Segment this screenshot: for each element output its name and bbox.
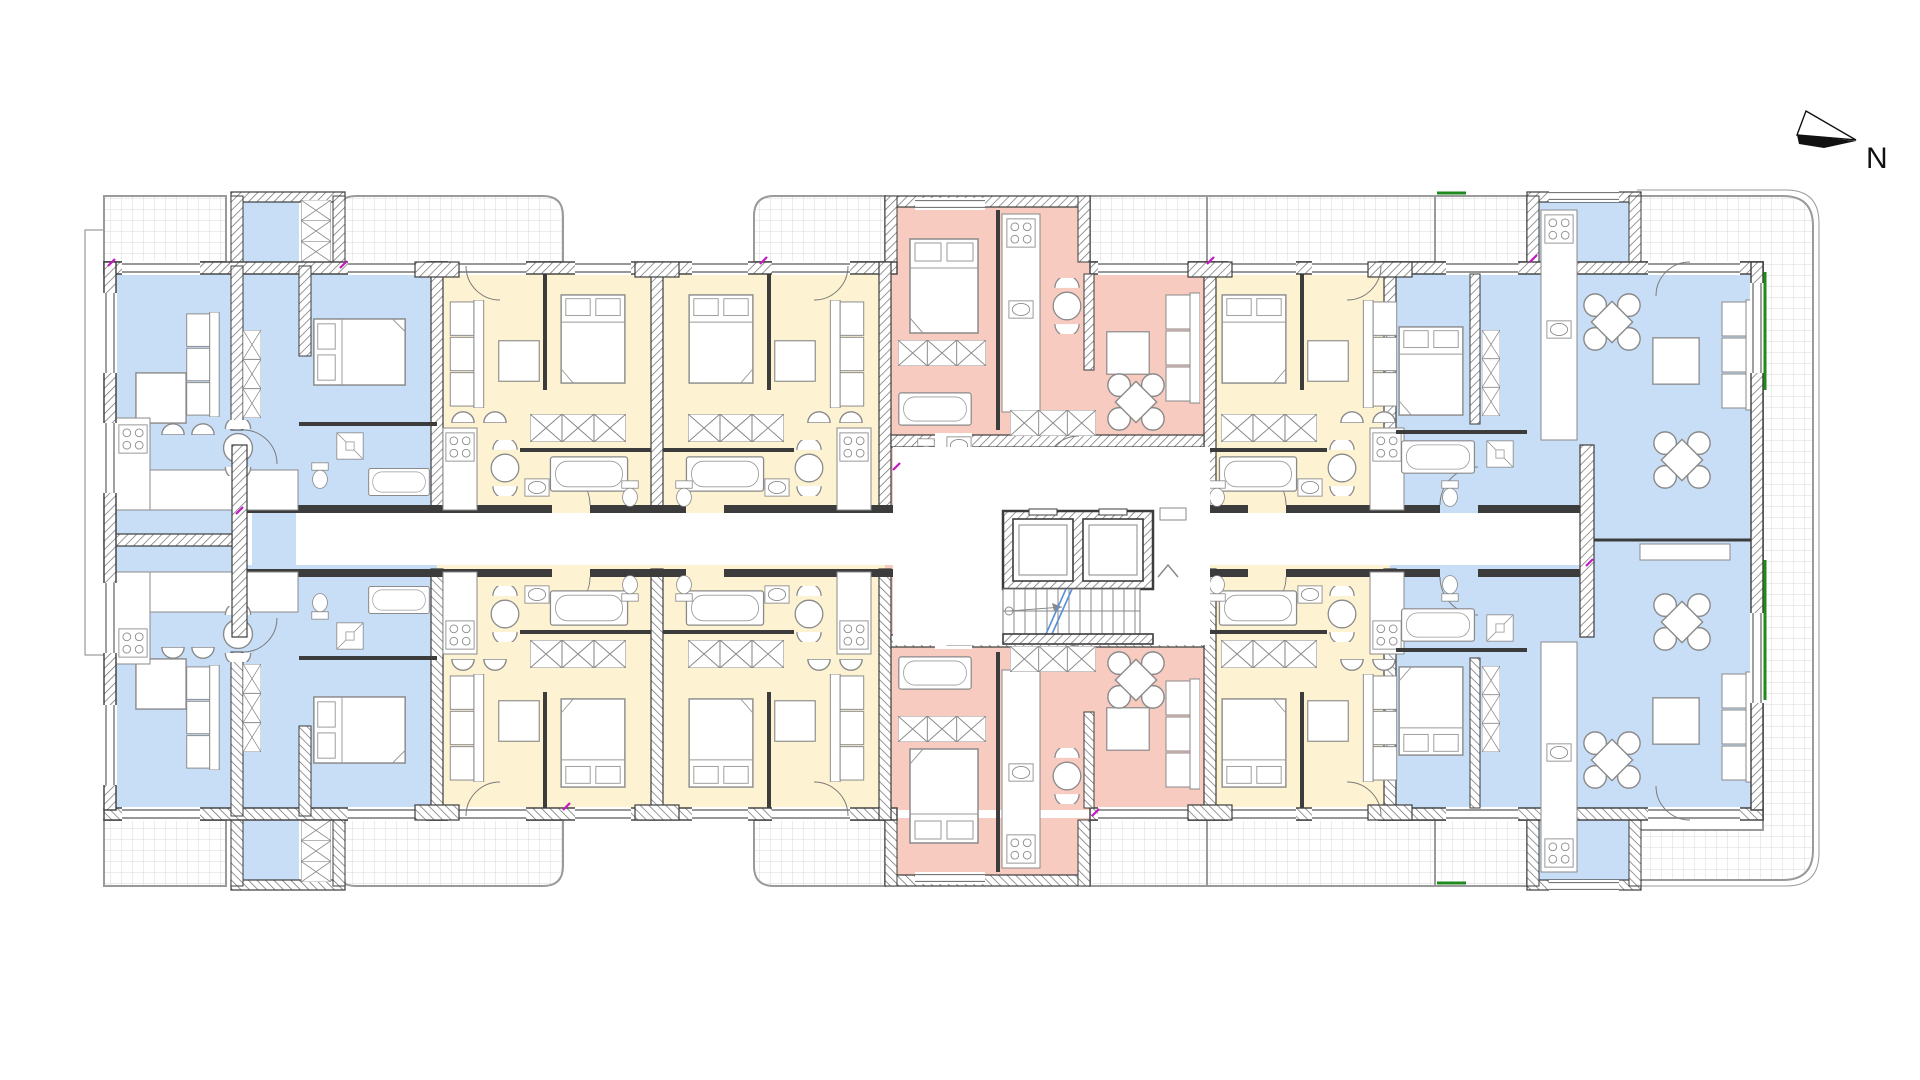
staircase: [1003, 589, 1140, 634]
desk: [1640, 544, 1730, 560]
balcony-left-upper: [336, 196, 563, 262]
coffee-table-icon: [1653, 338, 1699, 384]
sofa-icon: [1166, 293, 1200, 403]
balcony-west-upper: [104, 196, 226, 262]
floor-plan-canvas: N: [0, 0, 1920, 1080]
stove-icon: [1007, 219, 1035, 247]
toilet-icon: [312, 463, 328, 489]
stove-icon: [119, 425, 147, 453]
core-south-wall: [1003, 634, 1153, 644]
west-facade-balcony-strip: [85, 230, 104, 655]
sink-icon: [1009, 301, 1033, 318]
shower-icon: [1487, 441, 1513, 467]
dining-table-icon: [491, 438, 519, 498]
bed-icon: [1399, 327, 1463, 415]
balcony-mid-upper: [754, 196, 885, 262]
bed-icon: [910, 239, 978, 333]
coffee-table-icon: [499, 341, 540, 382]
dining-group-icon: [1584, 294, 1640, 350]
wardrobe-icon: [1010, 410, 1096, 436]
wardrobe-icon: [530, 414, 626, 442]
west-apartment-entry-strip: [243, 196, 299, 266]
wardrobe-icon: [301, 200, 331, 262]
west-apartment-hall-link: [252, 513, 296, 565]
north-label: N: [1866, 142, 1888, 175]
stove-icon: [1545, 215, 1573, 243]
coffee-table-icon: [136, 373, 186, 423]
kitchen-counter: [150, 470, 298, 510]
bed-icon: [561, 295, 625, 383]
elevator-door-1: [1029, 509, 1057, 515]
window-icon: [915, 198, 985, 210]
sink-icon: [525, 479, 549, 496]
shower-icon: [337, 433, 363, 459]
toilet-icon: [622, 481, 638, 507]
west-party-wall: [104, 534, 232, 546]
sofa-icon: [187, 312, 219, 417]
balcony-center-long-upper: [1090, 196, 1527, 262]
wardrobe-icon: [243, 330, 261, 418]
bed-icon: [314, 319, 405, 385]
corridor-east-end-wall: [1580, 445, 1594, 637]
dining-group-icon: [1654, 432, 1710, 488]
bathtub-icon: [1402, 441, 1475, 473]
bathtub-icon: [369, 469, 430, 496]
coffee-table-icon: [1107, 332, 1149, 374]
stove-icon: [446, 433, 474, 461]
dining-table-icon: [1053, 276, 1081, 336]
toilet-icon: [1442, 481, 1458, 507]
corridor-west-end-wall: [232, 445, 247, 637]
dining-group-icon: [1108, 374, 1164, 430]
sink-icon: [1547, 321, 1571, 338]
sofa-icon: [450, 300, 483, 408]
elevator-shaft-2: [1083, 519, 1143, 581]
elevator-shaft-1: [1013, 519, 1073, 581]
bathtub-icon: [899, 393, 971, 425]
bathtub-icon: [550, 457, 627, 491]
wardrobe-icon: [1482, 330, 1500, 416]
wardrobe-icon: [898, 340, 986, 366]
elevator-door-2: [1099, 509, 1127, 515]
